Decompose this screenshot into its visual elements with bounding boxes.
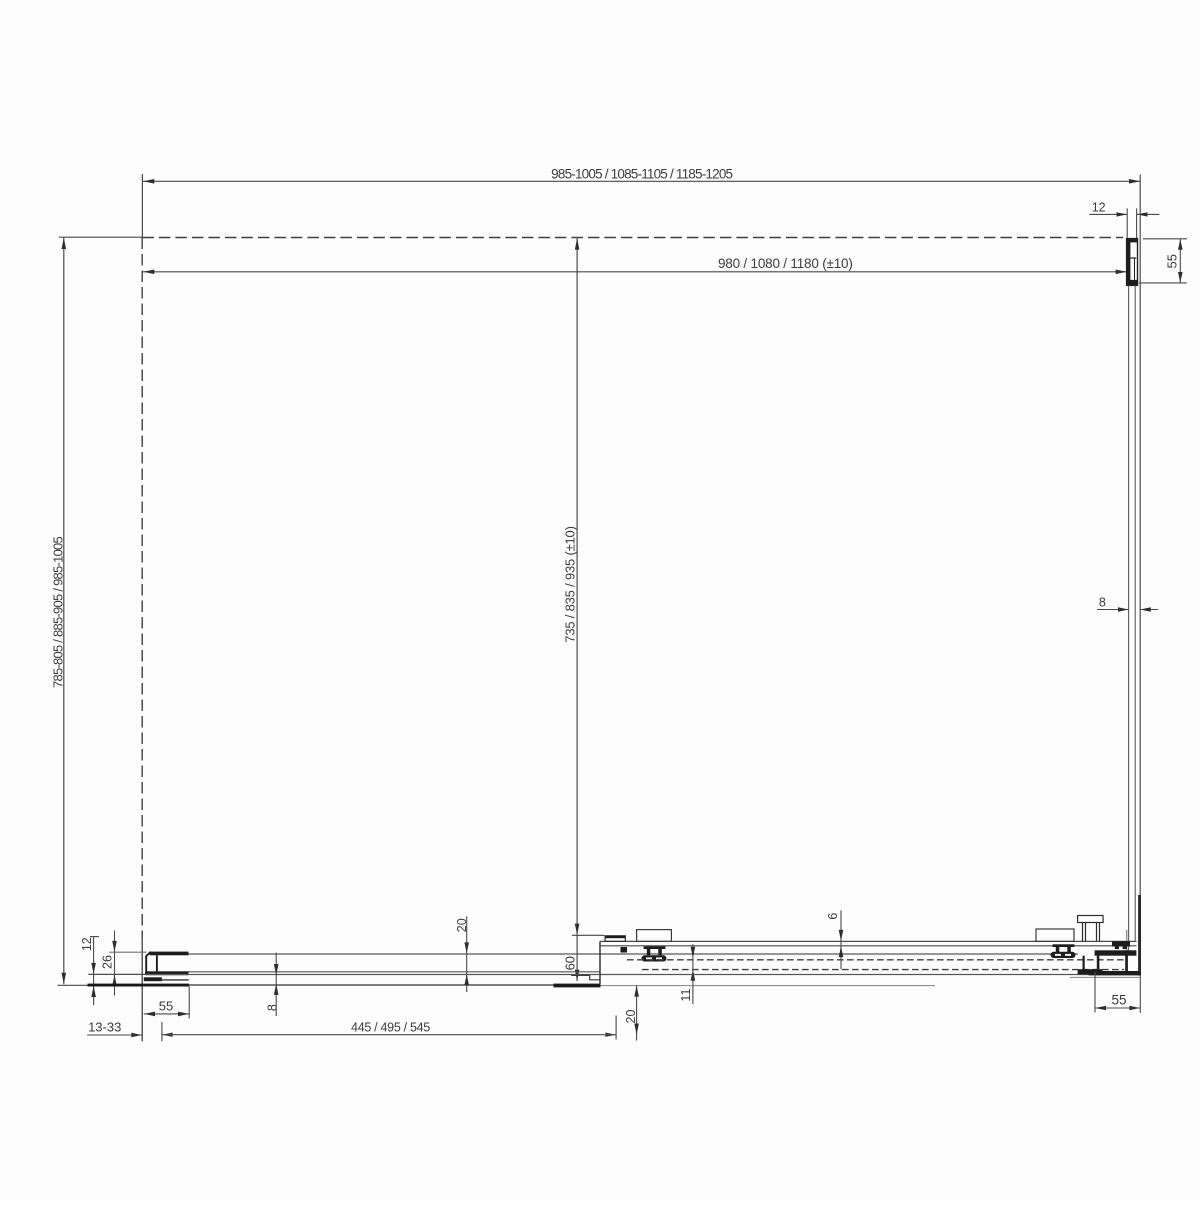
svg-text:60: 60: [562, 956, 577, 970]
svg-text:26: 26: [101, 955, 115, 969]
svg-text:8: 8: [266, 1004, 280, 1011]
svg-text:55: 55: [1165, 254, 1180, 268]
svg-text:11: 11: [679, 989, 693, 1002]
svg-text:12: 12: [80, 937, 94, 951]
svg-text:8: 8: [1099, 595, 1106, 609]
svg-text:13-33: 13-33: [88, 1020, 121, 1035]
svg-text:55: 55: [1111, 992, 1126, 1007]
svg-text:735 / 835 / 935 (±10): 735 / 835 / 935 (±10): [563, 526, 578, 642]
svg-text:980 / 1080 / 1180 (±10): 980 / 1080 / 1180 (±10): [718, 256, 853, 271]
svg-text:785-805 / 885-905 / 985-1005: 785-805 / 885-905 / 985-1005: [51, 536, 66, 688]
svg-text:12: 12: [1092, 201, 1106, 215]
svg-text:55: 55: [159, 998, 173, 1013]
svg-text:20: 20: [624, 1010, 638, 1024]
svg-text:6: 6: [826, 913, 840, 920]
svg-text:445 / 495 / 545: 445 / 495 / 545: [351, 1020, 430, 1034]
svg-text:985-1005 / 1085-1105 / 1185-12: 985-1005 / 1085-1105 / 1185-1205: [551, 167, 732, 182]
